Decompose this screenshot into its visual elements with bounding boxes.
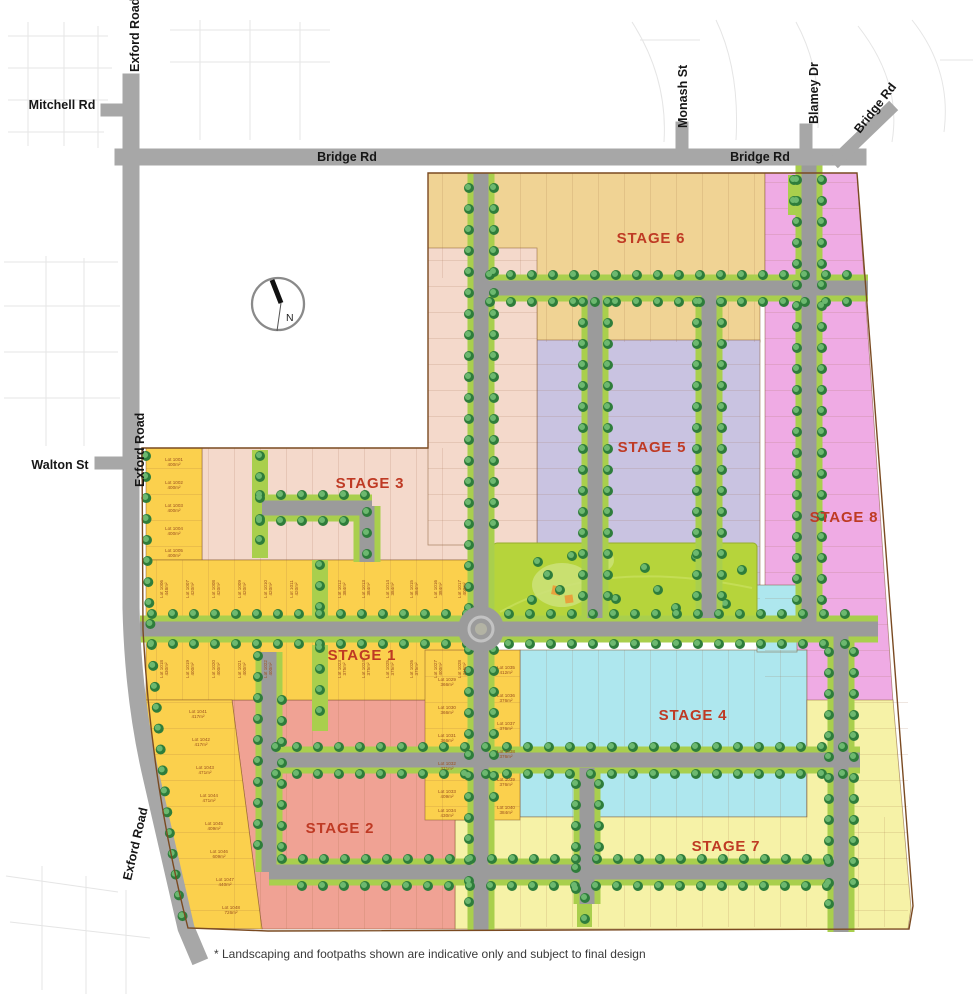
- stage-7-label: STAGE 7: [692, 838, 761, 855]
- stage-2-label: STAGE 2: [306, 820, 375, 837]
- road-label-bridge-east: Bridge Rd: [730, 150, 790, 164]
- north-compass: N: [252, 278, 304, 331]
- masterplan-map: N Lot 1001400m²Lot 1002400m²Lot 1003400m…: [0, 0, 973, 994]
- masterplan-page: N Lot 1001400m²Lot 1002400m²Lot 1003400m…: [0, 0, 973, 994]
- road-label-exford-mid: Exford Road: [133, 413, 147, 487]
- stage-3-label: STAGE 3: [336, 475, 405, 492]
- road-label-monash: Monash St: [676, 64, 690, 128]
- stage-5-label: STAGE 5: [618, 439, 687, 456]
- road-label-walton: Walton St: [31, 458, 89, 472]
- road-label-exford-bottom: Exford Road: [120, 806, 150, 882]
- stage-1-label: STAGE 1: [328, 647, 397, 664]
- stage-8-label: STAGE 8: [810, 509, 879, 526]
- compass-north-label: N: [286, 312, 294, 324]
- road-label-blamey: Blamey Dr: [807, 62, 821, 124]
- roundabout: [458, 606, 504, 652]
- stage-4-label: STAGE 4: [659, 707, 728, 724]
- road-label-mitchell: Mitchell Rd: [29, 98, 96, 112]
- road-label-bridge-main: Bridge Rd: [317, 150, 377, 164]
- footnote: * Landscaping and footpaths shown are in…: [214, 947, 646, 961]
- lot-label: Lot 1011420m²: [289, 580, 299, 598]
- road-label-exford-top: Exford Road: [128, 0, 142, 72]
- stage-6-label: STAGE 6: [617, 230, 686, 247]
